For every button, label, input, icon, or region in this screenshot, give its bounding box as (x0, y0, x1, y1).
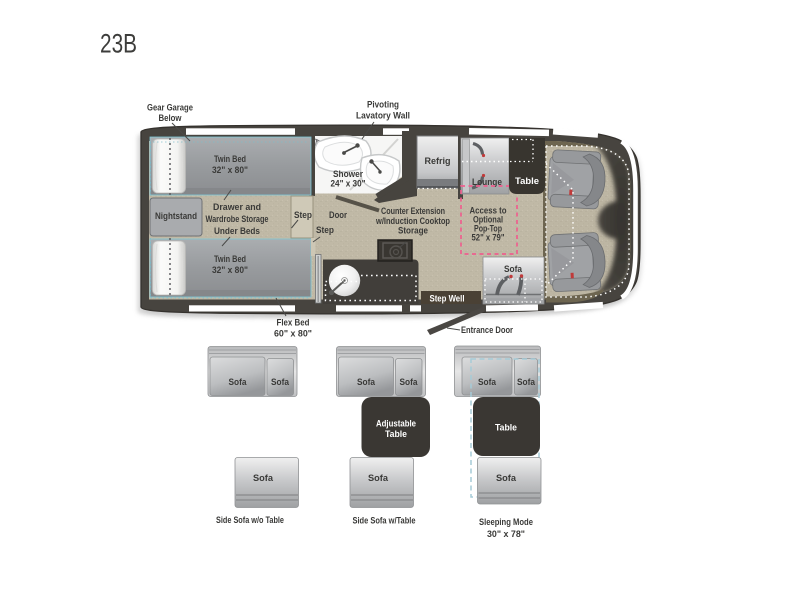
svg-text:Sleeping Mode: Sleeping Mode (479, 517, 533, 528)
svg-text:Side Sofa w/Table: Side Sofa w/Table (353, 516, 416, 527)
svg-text:Flex Bed: Flex Bed (277, 318, 310, 329)
svg-text:Entrance Door: Entrance Door (461, 325, 513, 336)
svg-text:Below: Below (159, 113, 182, 124)
svg-text:Drawer and: Drawer and (213, 202, 261, 213)
svg-text:Sofa: Sofa (400, 377, 419, 388)
svg-text:Sofa: Sofa (496, 473, 517, 484)
svg-text:Under Beds: Under Beds (214, 226, 260, 237)
svg-text:Sofa: Sofa (229, 377, 248, 388)
svg-text:Gear Garage: Gear Garage (147, 103, 193, 114)
svg-text:Nightstand: Nightstand (155, 211, 197, 222)
svg-text:52" x 79": 52" x 79" (472, 233, 505, 244)
svg-text:Table: Table (495, 423, 517, 434)
svg-text:30" x 78": 30" x 78" (487, 529, 525, 540)
svg-text:24" x 30": 24" x 30" (331, 179, 366, 190)
svg-text:32" x 80": 32" x 80" (212, 165, 248, 176)
svg-text:Step Well: Step Well (430, 294, 465, 305)
svg-text:Twin Bed: Twin Bed (214, 154, 246, 165)
svg-text:32" x 80": 32" x 80" (212, 265, 248, 276)
svg-text:Refrig: Refrig (425, 156, 451, 167)
svg-text:Sofa: Sofa (357, 377, 376, 388)
svg-text:Sofa: Sofa (504, 264, 523, 275)
svg-text:Wardrobe Storage: Wardrobe Storage (206, 214, 269, 225)
svg-text:Step: Step (294, 210, 312, 221)
svg-text:Table: Table (515, 176, 539, 187)
svg-text:Adjustable: Adjustable (376, 419, 416, 430)
svg-text:23B: 23B (100, 29, 137, 59)
svg-text:Sofa: Sofa (271, 377, 290, 388)
svg-text:60" x 80": 60" x 80" (274, 329, 312, 340)
svg-text:Twin Bed: Twin Bed (214, 254, 246, 265)
svg-text:Sofa: Sofa (517, 377, 536, 388)
svg-text:Lavatory Wall: Lavatory Wall (356, 111, 410, 122)
svg-text:Pivoting: Pivoting (367, 100, 399, 111)
svg-text:Sofa: Sofa (253, 473, 274, 484)
svg-text:Door: Door (329, 210, 347, 221)
svg-text:Sofa: Sofa (368, 473, 389, 484)
svg-text:Side Sofa w/o Table: Side Sofa w/o Table (216, 515, 284, 526)
svg-text:Step: Step (316, 225, 334, 236)
svg-text:Storage: Storage (398, 226, 428, 237)
svg-text:Sofa: Sofa (478, 377, 497, 388)
svg-text:Table: Table (385, 429, 407, 440)
